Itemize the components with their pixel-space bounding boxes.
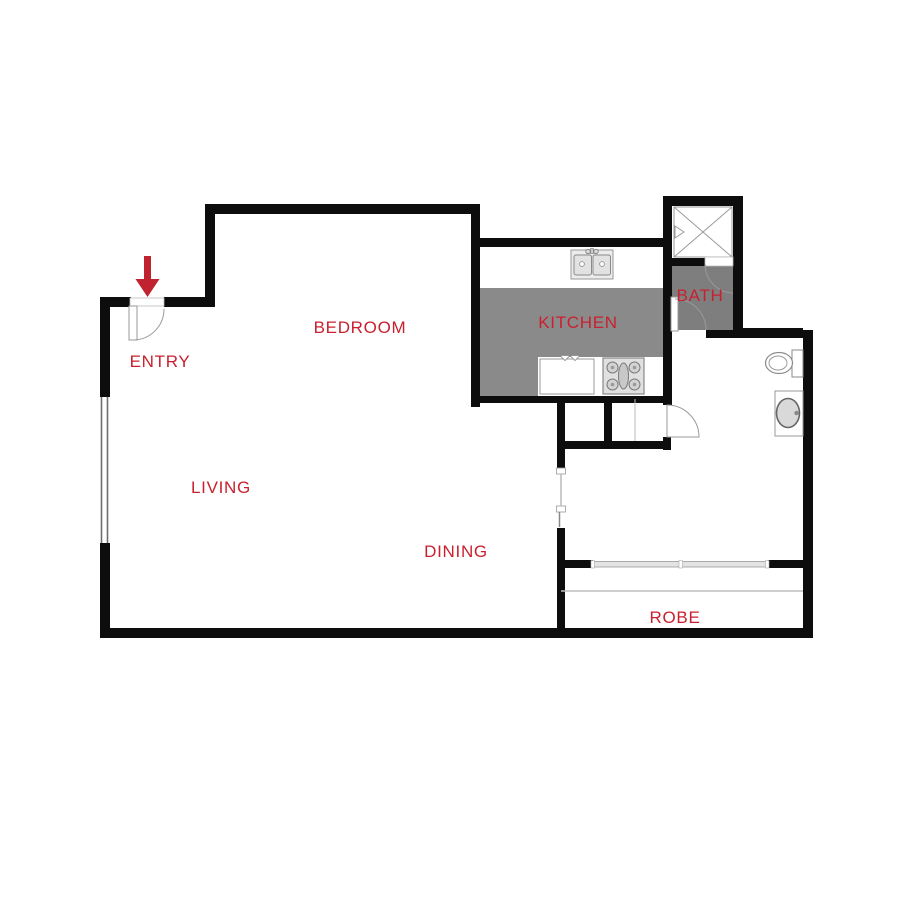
room-label-bath: BATH [677, 286, 724, 305]
sink-drain [580, 262, 585, 267]
wall-kitchen-bottom [471, 396, 671, 403]
cabinet-icon [540, 359, 594, 394]
wall-bedroom-kitchen-divider [471, 204, 480, 407]
burner-dot [611, 383, 615, 387]
wall-right [803, 330, 813, 638]
slider-jamb [679, 561, 683, 569]
cavity-slider [556, 468, 566, 528]
wall-shower-top [663, 196, 743, 206]
vanity [775, 391, 803, 436]
entry-arrow-icon [136, 256, 160, 297]
room-label-living: LIVING [191, 478, 251, 497]
wall-bath-bottom [706, 330, 733, 338]
wall-hall-left-lower [557, 528, 565, 638]
entry-door [129, 298, 164, 340]
toilet-tank [792, 350, 803, 377]
stove-icon [603, 358, 644, 394]
room-label-robe: ROBE [650, 608, 701, 627]
sink-tap [594, 249, 598, 253]
entry-door-leaf [129, 306, 137, 340]
shower-door-leaf [705, 257, 733, 266]
wall-shower-bottom [663, 258, 705, 266]
sink-tap [586, 249, 590, 253]
wc-door-swing-icon [667, 405, 699, 437]
wall-bottom [100, 628, 813, 638]
wall-left-lower [100, 543, 110, 638]
slider-jamb [766, 561, 770, 569]
wall-kitchen-top [471, 238, 672, 247]
cavity-slider-jamb [557, 468, 566, 474]
window-left [99, 397, 111, 543]
bathroom-fixtures [766, 350, 804, 436]
sink-drain [600, 262, 605, 267]
wall-bedroom-top [205, 204, 480, 214]
sliding-door-icon [681, 562, 768, 568]
wall-shower-right [733, 196, 743, 338]
wall-closet-divider [604, 396, 612, 448]
wall-left-upper [100, 297, 110, 397]
robe-area [561, 561, 803, 592]
double-sink-icon [571, 249, 613, 280]
wall-closet-bottom [557, 441, 671, 449]
sliding-door-icon [593, 562, 682, 568]
floor-plan-drawing: ENTRY BEDROOM KITCHEN BATH LIVING DINING… [0, 0, 900, 900]
wall-entry-right [164, 297, 215, 307]
sink-spout [591, 249, 594, 254]
wall-bedroom-left [205, 204, 215, 307]
floor-plan: ENTRY BEDROOM KITCHEN BATH LIVING DINING… [0, 0, 900, 900]
wc-door [663, 405, 699, 437]
wall-robe-left-stub [557, 560, 593, 568]
burner-dot [633, 383, 637, 387]
room-label-kitchen: KITCHEN [538, 313, 618, 332]
wall-robe-right-stub [768, 560, 803, 568]
room-label-bedroom: BEDROOM [314, 318, 407, 337]
entry-arrow-head [136, 279, 160, 297]
entry-door-swing-icon [133, 309, 164, 340]
entry-arrow-shaft [144, 256, 151, 280]
wall-bath-to-right [735, 328, 803, 338]
slider-jamb [591, 561, 595, 569]
vanity-tap [794, 411, 798, 415]
room-label-dining: DINING [424, 542, 488, 561]
entry-door-frame [130, 298, 164, 306]
burner-dot [633, 366, 637, 370]
room-label-entry: ENTRY [130, 352, 191, 371]
wall-hall-left-upper [557, 396, 565, 470]
wall-door-stub [663, 437, 671, 450]
toilet-icon [766, 350, 804, 377]
burner-dot [611, 366, 615, 370]
cavity-slider-jamb [557, 506, 566, 512]
stove-center [619, 363, 629, 389]
